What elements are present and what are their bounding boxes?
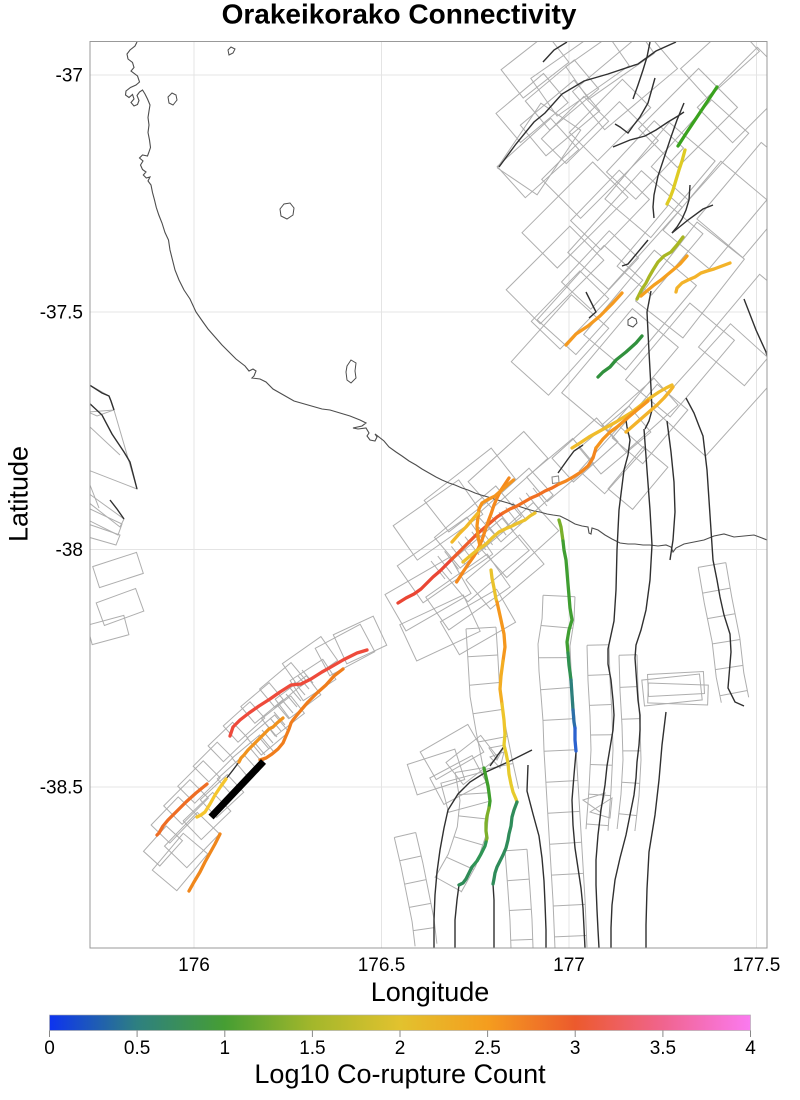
svg-text:176: 176	[178, 955, 210, 976]
svg-text:-38.5: -38.5	[40, 778, 83, 799]
svg-text:1: 1	[220, 1038, 231, 1059]
svg-text:-38: -38	[56, 540, 83, 561]
svg-text:0: 0	[44, 1038, 55, 1059]
svg-text:3.5: 3.5	[650, 1038, 676, 1059]
svg-text:-37: -37	[56, 66, 83, 87]
svg-text:Longitude: Longitude	[371, 977, 490, 1007]
svg-text:-37.5: -37.5	[40, 303, 83, 324]
svg-text:2: 2	[395, 1038, 406, 1059]
svg-text:0.5: 0.5	[124, 1038, 150, 1059]
svg-text:3: 3	[570, 1038, 581, 1059]
svg-text:Log10 Co-rupture Count: Log10 Co-rupture Count	[254, 1059, 546, 1089]
svg-text:4: 4	[745, 1038, 756, 1059]
svg-text:Latitude: Latitude	[4, 446, 34, 542]
svg-text:177: 177	[553, 955, 585, 976]
svg-text:177.5: 177.5	[733, 955, 781, 976]
svg-text:1.5: 1.5	[299, 1038, 325, 1059]
svg-text:Orakeikorako Connectivity: Orakeikorako Connectivity	[222, 0, 577, 30]
svg-text:176.5: 176.5	[358, 955, 406, 976]
svg-text:2.5: 2.5	[474, 1038, 500, 1059]
